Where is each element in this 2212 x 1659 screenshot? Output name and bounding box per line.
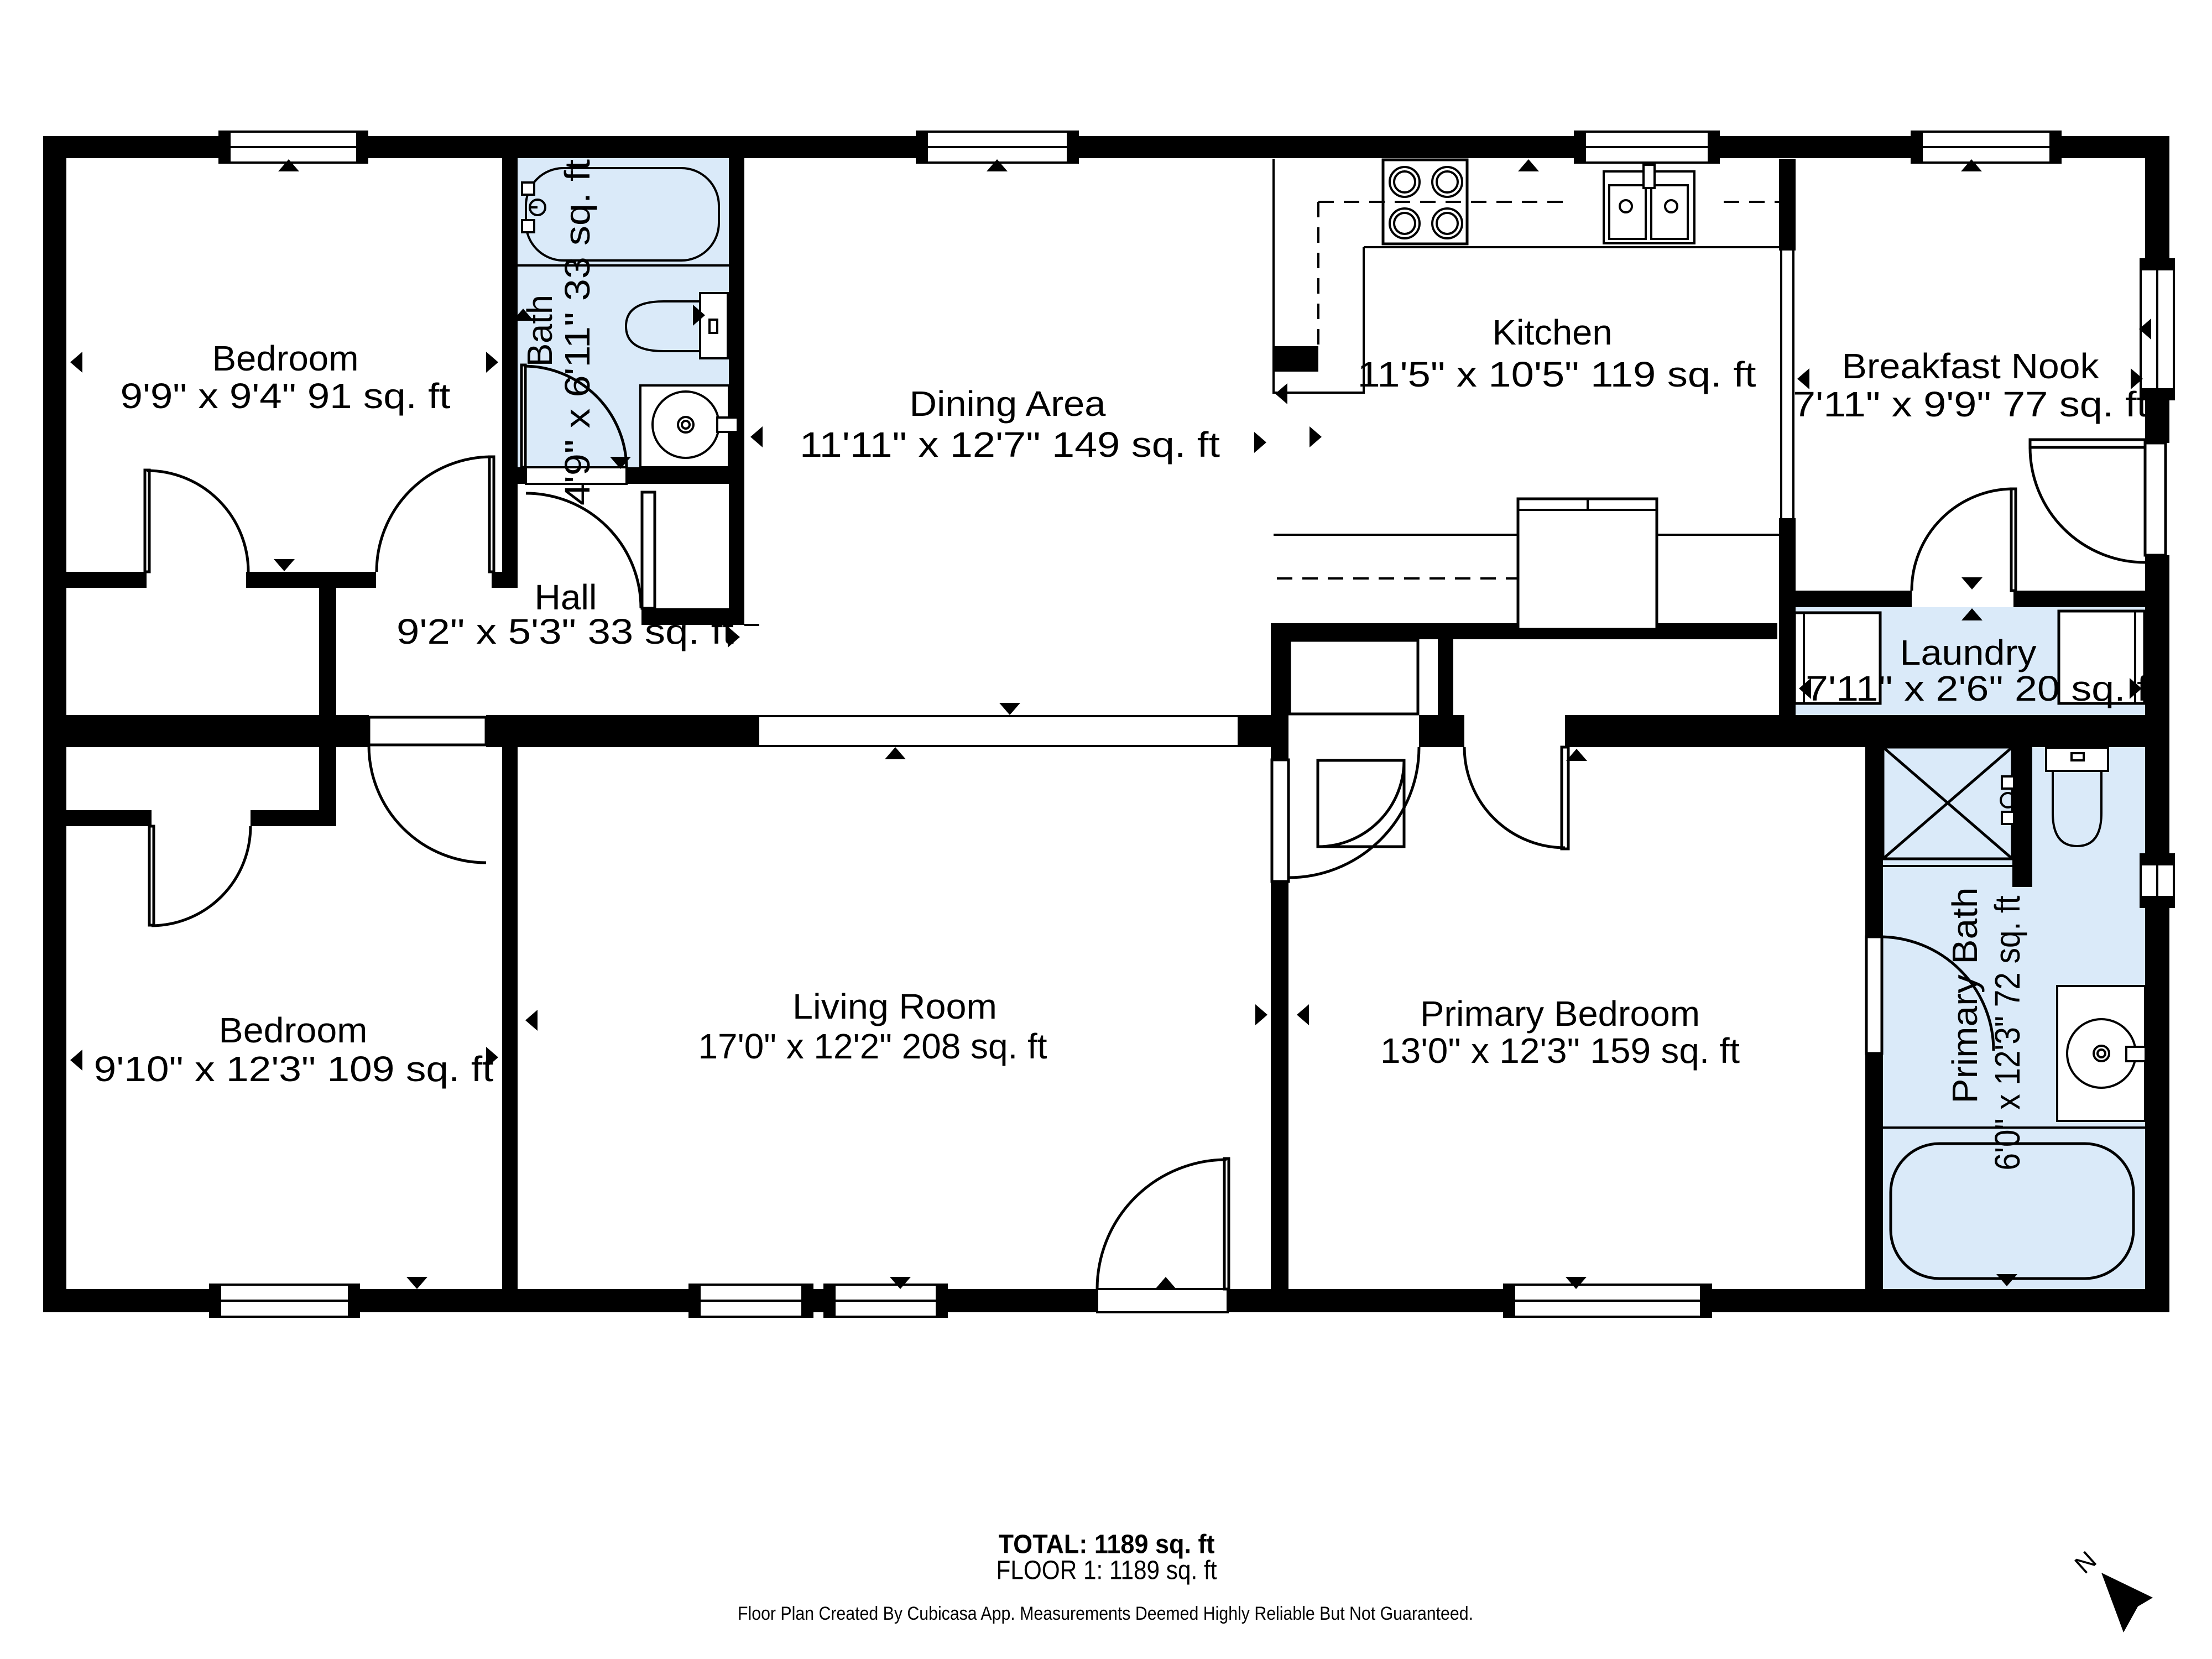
- svg-text:9'2" x 5'3" 33 sq. ft: 9'2" x 5'3" 33 sq. ft: [397, 612, 734, 651]
- svg-text:Bedroom: Bedroom: [219, 1010, 368, 1050]
- svg-text:Dining Area: Dining Area: [910, 384, 1106, 424]
- svg-text:9'9" x 9'4" 91 sq. ft: 9'9" x 9'4" 91 sq. ft: [121, 376, 451, 416]
- svg-text:Laundry: Laundry: [1900, 633, 2037, 672]
- svg-text:Primary Bedroom: Primary Bedroom: [1420, 994, 1700, 1034]
- svg-text:4'9" x 6'11" 33 sq. ft: 4'9" x 6'11" 33 sq. ft: [557, 159, 597, 505]
- svg-text:Floor Plan Created By Cubicasa: Floor Plan Created By Cubicasa App. Meas…: [738, 1603, 1473, 1624]
- svg-text:Breakfast Nook: Breakfast Nook: [1842, 346, 2100, 386]
- svg-text:Living Room: Living Room: [792, 987, 997, 1026]
- svg-text:17'0" x 12'2" 208 sq. ft: 17'0" x 12'2" 208 sq. ft: [698, 1026, 1047, 1066]
- svg-text:13'0" x 12'3" 159 sq. ft: 13'0" x 12'3" 159 sq. ft: [1380, 1031, 1740, 1071]
- svg-text:Bath: Bath: [520, 295, 560, 367]
- svg-text:N: N: [2069, 1546, 2101, 1579]
- svg-text:TOTAL: 1189 sq. ft: TOTAL: 1189 sq. ft: [999, 1530, 1215, 1559]
- svg-text:Primary Bath: Primary Bath: [1945, 888, 1985, 1104]
- svg-text:FLOOR 1: 1189 sq. ft: FLOOR 1: 1189 sq. ft: [997, 1556, 1217, 1585]
- svg-text:9'10" x 12'3" 109 sq. ft: 9'10" x 12'3" 109 sq. ft: [94, 1049, 494, 1089]
- svg-text:11'5" x 10'5" 119 sq. ft: 11'5" x 10'5" 119 sq. ft: [1358, 354, 1756, 394]
- svg-text:7'11" x 2'6" 20 sq. ft: 7'11" x 2'6" 20 sq. ft: [1806, 669, 2159, 708]
- svg-text:6'0" x 12'3" 72 sq. ft: 6'0" x 12'3" 72 sq. ft: [1987, 895, 2027, 1170]
- svg-text:11'11" x 12'7" 149 sq. ft: 11'11" x 12'7" 149 sq. ft: [800, 425, 1220, 465]
- svg-text:Bedroom: Bedroom: [212, 338, 359, 378]
- svg-text:Kitchen: Kitchen: [1493, 312, 1613, 352]
- svg-text:7'11" x 9'9" 77 sq. ft: 7'11" x 9'9" 77 sq. ft: [1793, 384, 2148, 424]
